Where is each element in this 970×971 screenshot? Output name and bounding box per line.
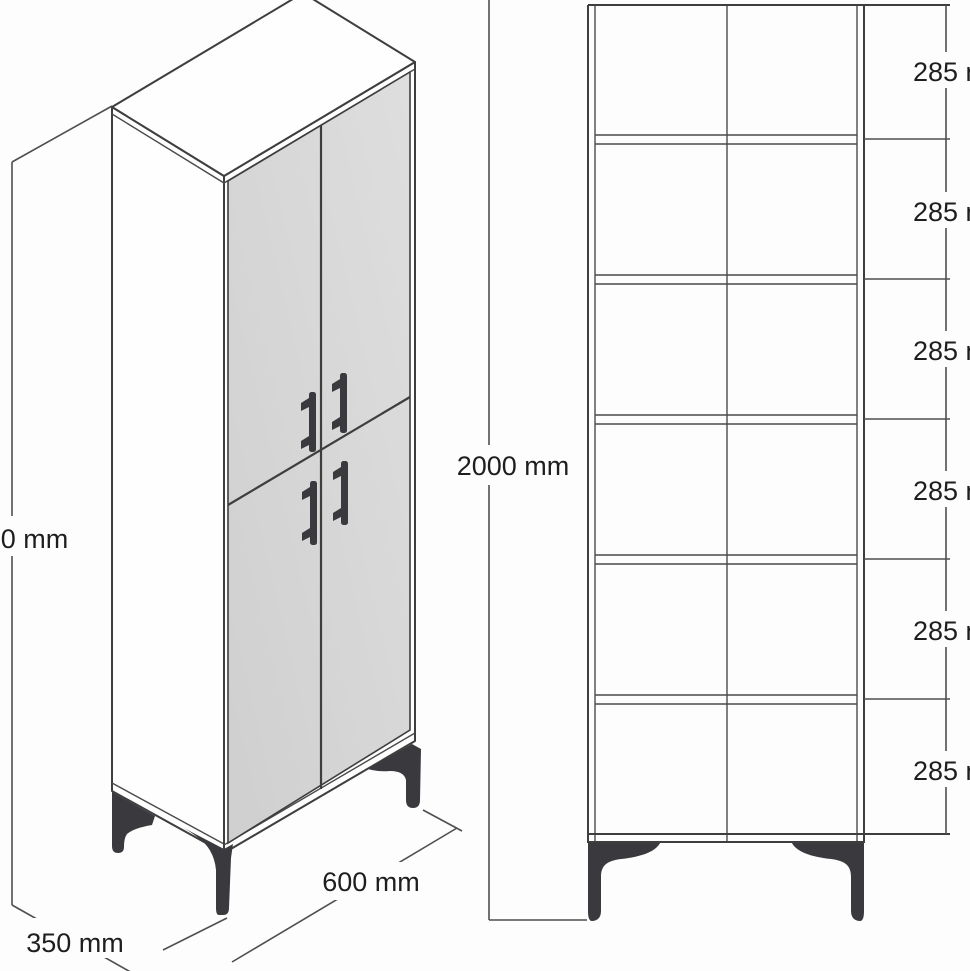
compartment-label: 285 mm [913,336,970,366]
front-view: 2000 mm 285 mm 285 mm 285 mm 285 mm [445,0,970,921]
technical-drawing: 2000 mm 350 mm 600 mm [0,0,970,971]
compartment-label: 285 mm [913,756,970,786]
compartment-label: 285 mm [913,197,970,227]
front-height-label: 2000 mm [457,451,570,481]
cabinet-feet-front-view [588,841,864,921]
compartment-label: 285 mm [913,616,970,646]
iso-width-extension-line [423,810,462,831]
front-dimensions: 2000 mm 285 mm 285 mm 285 mm 285 mm [445,0,970,920]
iso-height-extension-line [12,106,112,162]
compartment-label: 285 mm [913,476,970,506]
iso-height-label: 2000 mm [0,524,68,554]
iso-width-label: 600 mm [322,867,420,897]
iso-depth-extension-line [163,918,227,950]
iso-depth-label: 350 mm [26,928,124,958]
front-view-foot-right [791,841,864,921]
front-shelves [595,135,857,704]
cabinet-side-face [112,107,224,853]
compartment-label: 285 mm [913,57,970,87]
isometric-view: 2000 mm 350 mm 600 mm [0,0,462,971]
door-panel-area [228,72,410,843]
front-view-foot-left [588,841,661,921]
